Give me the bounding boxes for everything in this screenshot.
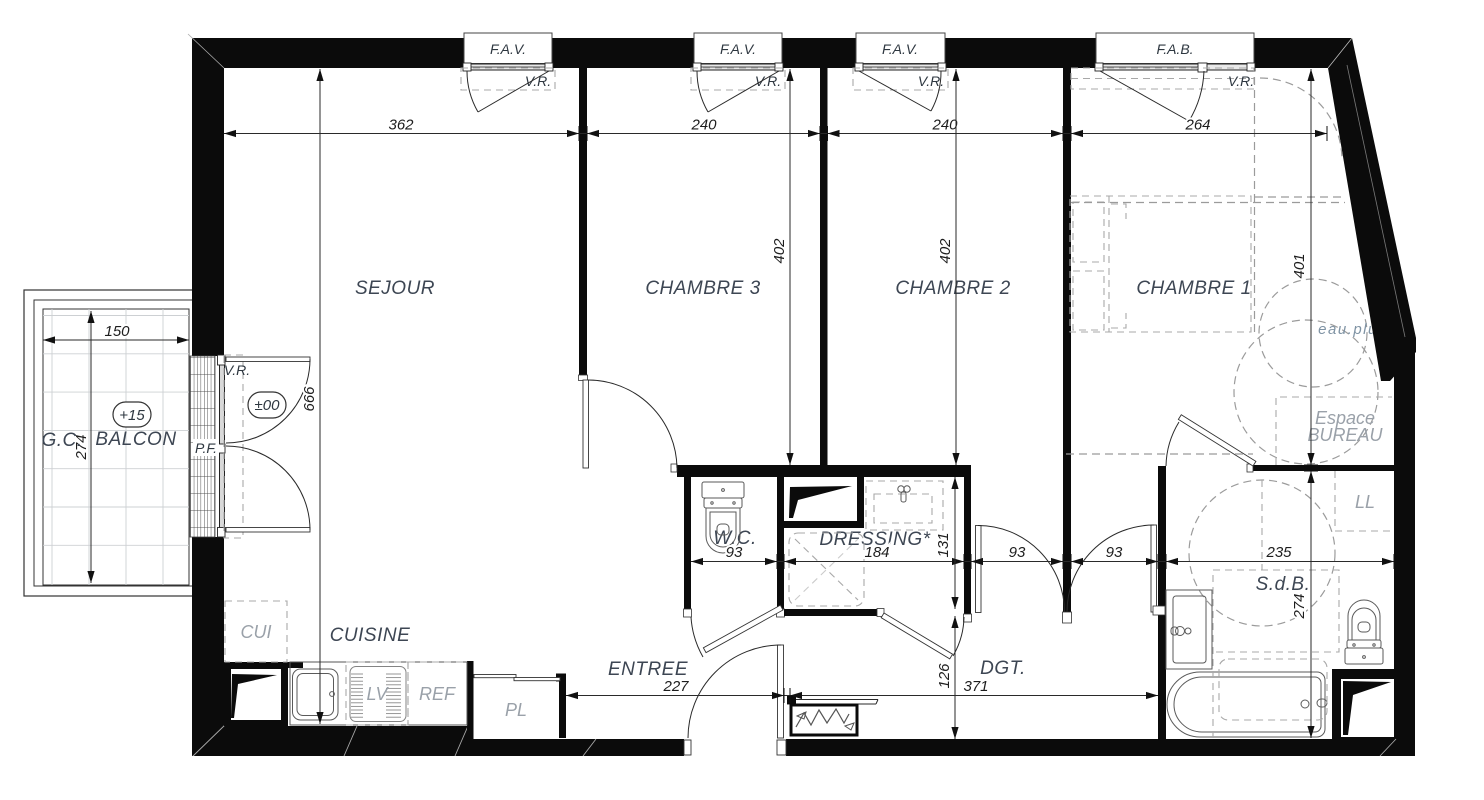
svg-text:V.R.: V.R. <box>224 362 250 378</box>
svg-text:274: 274 <box>1291 593 1308 619</box>
svg-text:93: 93 <box>1106 544 1123 561</box>
svg-text:V.R.: V.R. <box>525 73 551 89</box>
svg-text:CHAMBRE 3: CHAMBRE 3 <box>645 278 760 299</box>
svg-text:CUI: CUI <box>241 622 272 642</box>
svg-text:eau.plu: eau.plu <box>1318 321 1378 338</box>
svg-text:CHAMBRE 2: CHAMBRE 2 <box>895 278 1010 299</box>
svg-text:+15: +15 <box>119 407 145 424</box>
svg-text:93: 93 <box>1009 544 1026 561</box>
svg-text:LL: LL <box>1355 492 1375 512</box>
svg-text:V.R.: V.R. <box>1228 73 1254 89</box>
svg-text:235: 235 <box>1265 544 1292 561</box>
svg-text:666: 666 <box>301 386 318 412</box>
svg-text:402: 402 <box>771 238 788 264</box>
svg-text:CUISINE: CUISINE <box>330 625 411 646</box>
svg-text:401: 401 <box>1291 253 1308 278</box>
svg-text:V.R.: V.R. <box>755 73 781 89</box>
svg-text:BALCON: BALCON <box>95 429 176 450</box>
svg-text:P.F.: P.F. <box>195 440 217 456</box>
svg-text:240: 240 <box>690 117 717 134</box>
svg-text:F.A.V.: F.A.V. <box>490 41 526 57</box>
svg-text:371: 371 <box>963 678 988 695</box>
svg-text:±00: ±00 <box>255 397 281 414</box>
svg-text:LV: LV <box>366 684 389 704</box>
svg-text:ENTREE: ENTREE <box>608 659 688 680</box>
svg-text:F.A.V.: F.A.V. <box>882 41 918 57</box>
svg-text:402: 402 <box>937 238 954 264</box>
svg-text:126: 126 <box>936 663 953 689</box>
svg-text:G.C.: G.C. <box>41 430 82 451</box>
svg-text:362: 362 <box>388 117 414 134</box>
svg-text:DGT.: DGT. <box>980 658 1026 679</box>
svg-text:F.A.V.: F.A.V. <box>720 41 756 57</box>
svg-text:264: 264 <box>1184 117 1210 134</box>
svg-text:BUREAU: BUREAU <box>1307 425 1383 445</box>
svg-text:SEJOUR: SEJOUR <box>355 278 435 299</box>
svg-text:PL: PL <box>505 700 527 720</box>
svg-text:240: 240 <box>931 117 958 134</box>
svg-text:S.d.B.: S.d.B. <box>1256 574 1311 595</box>
svg-text:150: 150 <box>104 323 130 340</box>
svg-text:F.A.B.: F.A.B. <box>1156 41 1193 57</box>
svg-text:131: 131 <box>935 532 952 557</box>
svg-text:CHAMBRE 1: CHAMBRE 1 <box>1136 278 1251 299</box>
svg-text:REF: REF <box>419 684 456 704</box>
svg-text:93: 93 <box>726 544 743 561</box>
svg-text:184: 184 <box>864 544 889 561</box>
svg-text:227: 227 <box>662 678 689 695</box>
